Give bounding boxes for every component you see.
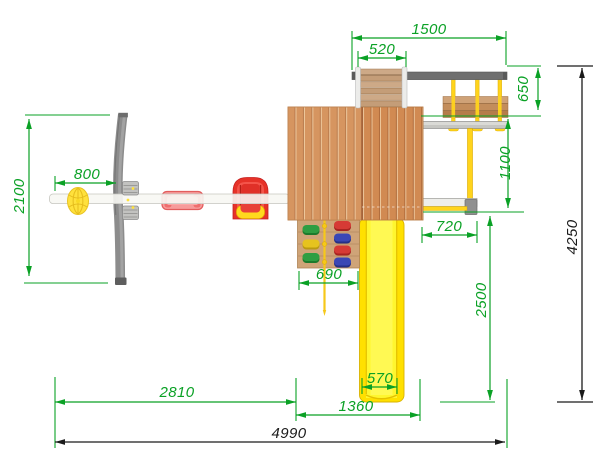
dim-520-label: 520 — [369, 41, 395, 58]
dim-570-label: 570 — [367, 370, 393, 387]
swing-module — [423, 79, 508, 215]
dimensions-green: 1500 520 650 1100 720 2500 690 570 1360 … — [11, 21, 541, 448]
climbing-holds-left — [303, 225, 320, 263]
gym-beam-module — [50, 113, 290, 285]
dim-720-label: 720 — [436, 218, 462, 235]
dim-4990-label: 4990 — [272, 425, 307, 442]
dim-2100-label: 2100 — [11, 178, 28, 214]
frame-post-bottom-cap — [115, 278, 127, 286]
playground-drawing: 1500 520 650 1100 720 2500 690 570 1360 … — [0, 0, 600, 451]
dim-2810-label: 2810 — [159, 384, 195, 401]
dim-650-label: 650 — [515, 76, 532, 102]
dim-2500-label: 2500 — [473, 282, 490, 318]
dim-1500-label: 1500 — [412, 21, 447, 38]
dim-1100-label: 1100 — [497, 146, 514, 180]
dim-4250-label: 4250 — [564, 219, 581, 254]
ball — [68, 188, 89, 215]
ladder — [356, 67, 408, 108]
frame-post-top-cap — [118, 113, 128, 118]
swing-rail-yellow-strip — [423, 207, 467, 211]
swing-yellow-post — [468, 129, 473, 201]
drawing-canvas: 1500 520 650 1100 720 2500 690 570 1360 … — [0, 0, 600, 451]
dim-800-label: 800 — [74, 166, 100, 183]
ladder-rail-left — [356, 67, 361, 108]
dim-1360-label: 1360 — [339, 398, 374, 415]
slide-chute-highlight — [371, 218, 393, 395]
dim-690-label: 690 — [316, 266, 342, 283]
ladder-rail-right — [402, 67, 407, 108]
tower-roof — [288, 107, 423, 220]
swing-upper-rail-highlight — [424, 122, 508, 125]
